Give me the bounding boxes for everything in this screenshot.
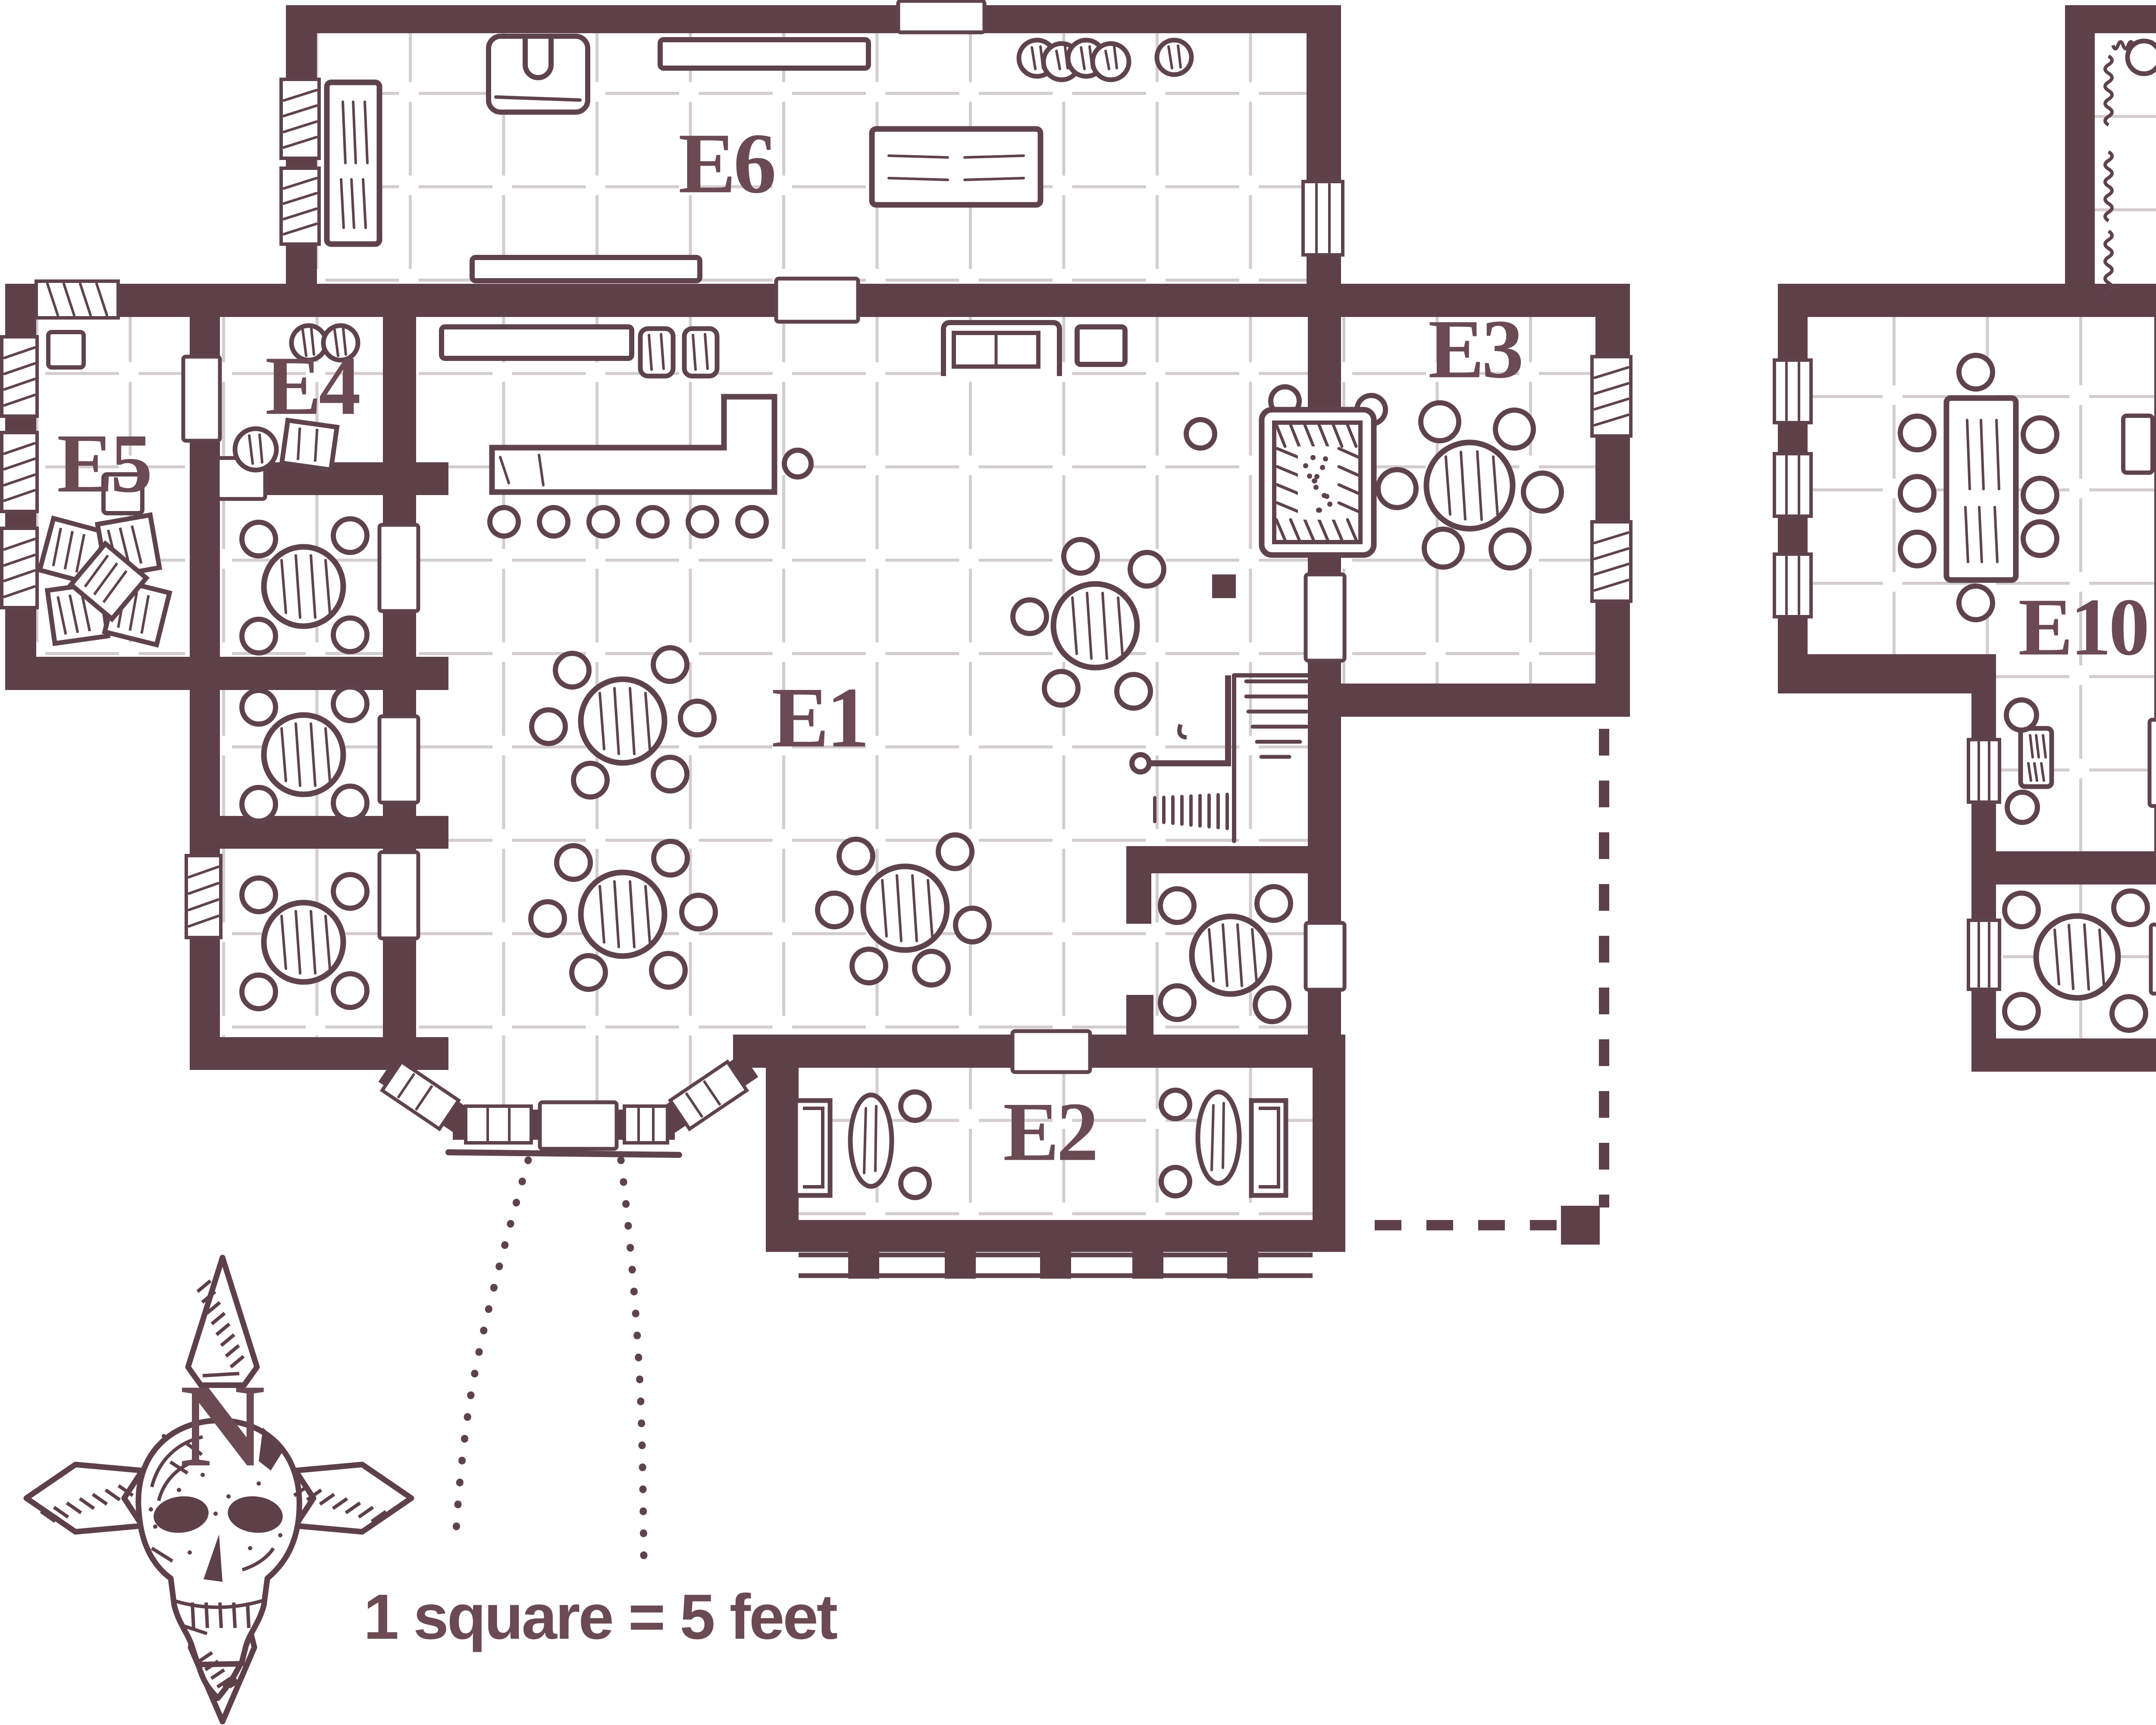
- svg-text:E10: E10: [2018, 582, 2147, 673]
- svg-text:E4: E4: [265, 339, 359, 433]
- svg-text:E5: E5: [57, 417, 150, 510]
- svg-text:E1: E1: [771, 670, 867, 765]
- svg-text:1 square = 5 feet: 1 square = 5 feet: [364, 1581, 837, 1653]
- svg-text:E2: E2: [1003, 1085, 1096, 1179]
- svg-text:E3: E3: [1428, 303, 1521, 396]
- svg-text:E6: E6: [678, 116, 774, 211]
- svg-text:N: N: [180, 1360, 266, 1491]
